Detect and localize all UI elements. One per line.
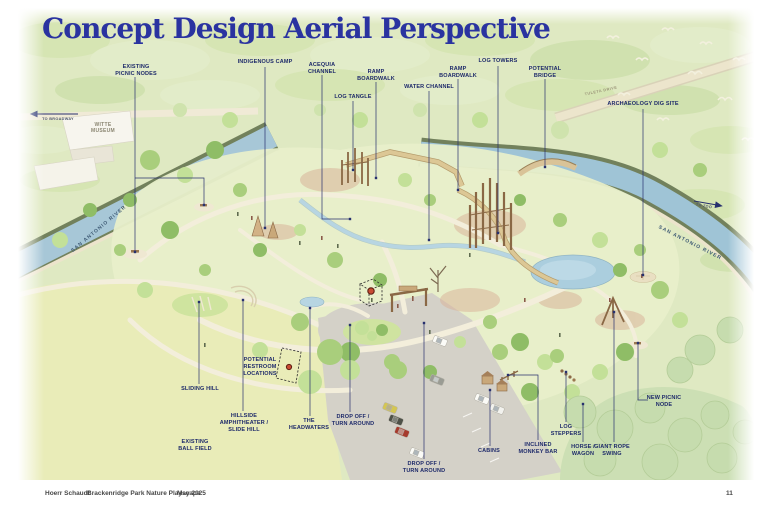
callout-existing-ball-field: EXISTING BALL FIELD <box>178 439 211 453</box>
callout-ramp-boardwalk-west: RAMP BOARDWALK <box>357 69 395 83</box>
footer-firm: Hoerr Schaudt <box>45 490 90 497</box>
footer-date: May 2025 <box>177 490 206 497</box>
to-broadway-label: TO BROADWAY <box>42 117 74 121</box>
presentation-page: Concept Design Aerial Perspective WITTE … <box>0 0 780 505</box>
callout-horse-wagon: HORSE / WAGON <box>571 444 595 458</box>
callout-ramp-boardwalk-east: RAMP BOARDWALK <box>439 66 477 80</box>
callout-cabins: CABINS <box>478 448 500 455</box>
page-title: Concept Design Aerial Perspective <box>42 12 602 45</box>
callout-the-headwaters: THE HEADWATERS <box>289 418 329 432</box>
callout-archaeology-dig-site: ARCHAEOLOGY DIG SITE <box>607 101 678 108</box>
callout-drop-off-turn-around-south: DROP OFF / TURN AROUND <box>403 461 445 475</box>
callout-acequia-channel: ACEQUIA CHANNEL <box>308 62 336 76</box>
callout-drop-off-turn-around-west: DROP OFF / TURN AROUND <box>332 414 374 428</box>
callout-giant-rope-swing: GIANT ROPE SWING <box>594 444 630 458</box>
callout-log-steppers: LOG STEPPERS <box>551 424 582 438</box>
callout-indigenous-camp: INDIGENOUS CAMP <box>238 59 293 66</box>
callout-potential-bridge: POTENTIAL BRIDGE <box>529 66 562 80</box>
callout-existing-picnic-nodes: EXISTING PICNIC NODES <box>115 64 157 78</box>
callout-log-tangle: LOG TANGLE <box>334 94 371 101</box>
callout-water-channel: WATER CHANNEL <box>404 84 454 91</box>
witte-museum-label: WITTE MUSEUM <box>91 122 115 134</box>
callout-log-towers: LOG TOWERS <box>479 58 518 65</box>
callout-new-picnic-node: NEW PICNIC NODE <box>647 395 682 409</box>
callout-inclined-monkey-bar: INCLINED MONKEY BAR <box>519 442 558 456</box>
page-number: 11 <box>726 490 733 497</box>
callout-hillside-amphitheater: HILLSIDE AMPHITHEATER / SLIDE HILL <box>220 413 268 434</box>
callout-sliding-hill: SLIDING HILL <box>181 386 219 393</box>
callout-potential-restroom-locations: POTENTIAL RESTROOM LOCATIONS <box>243 357 276 378</box>
